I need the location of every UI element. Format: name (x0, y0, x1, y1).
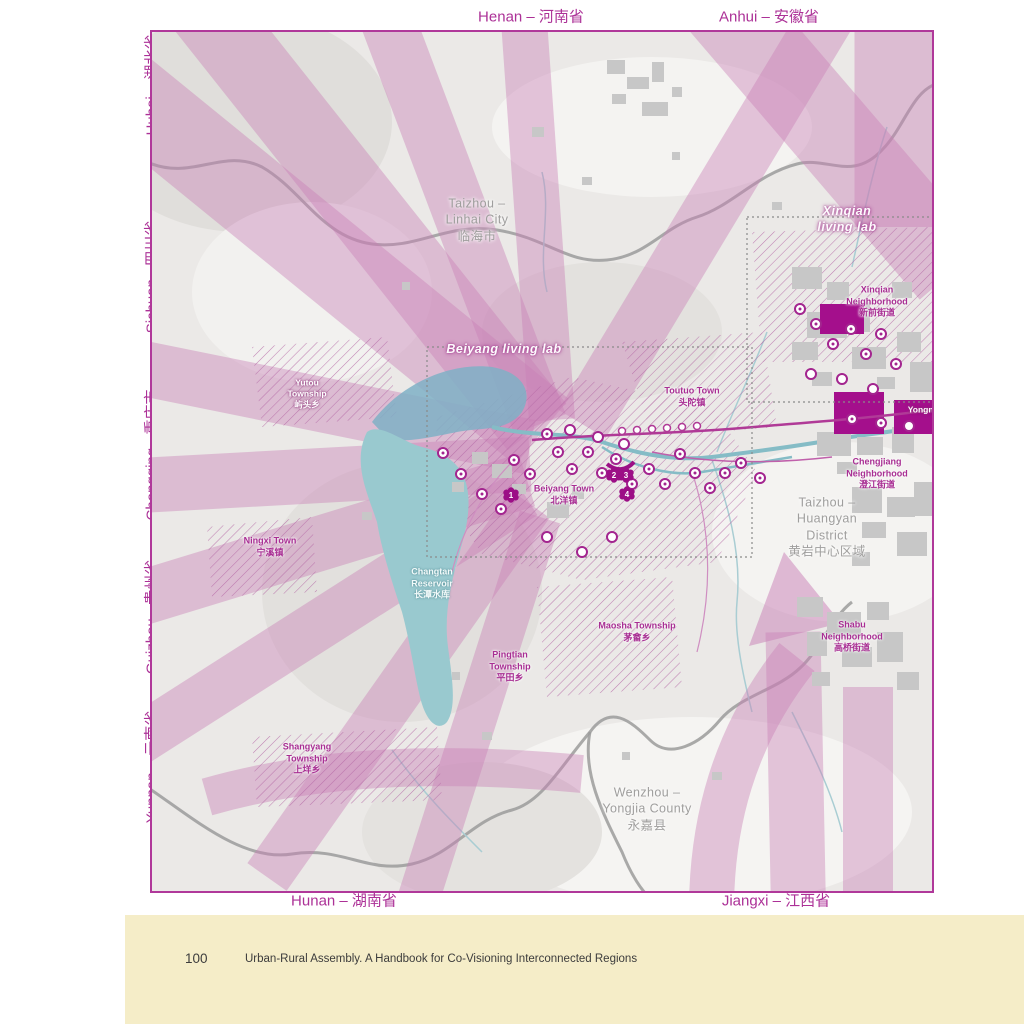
footer-band: 100 Urban-Rural Assembly. A Handbook for… (125, 915, 1024, 1024)
page-number: 100 (185, 951, 208, 966)
book-title: Urban-Rural Assembly. A Handbook for Co-… (245, 953, 637, 965)
svg-text:2: 2 (612, 471, 617, 480)
svg-text:3: 3 (624, 471, 629, 480)
map-frame: 1 2 (150, 30, 934, 893)
svg-text:1: 1 (509, 491, 514, 500)
edge-label-henan: Henan – 河南省 (478, 6, 584, 27)
book-page: Henan – 河南省 Anhui – 安徽省 Hubei – 湖北省 Sich… (0, 0, 1024, 1024)
map-canvas: 1 2 (152, 32, 932, 891)
edge-label-anhui: Anhui – 安徽省 (719, 6, 819, 27)
svg-text:4: 4 (625, 490, 630, 499)
